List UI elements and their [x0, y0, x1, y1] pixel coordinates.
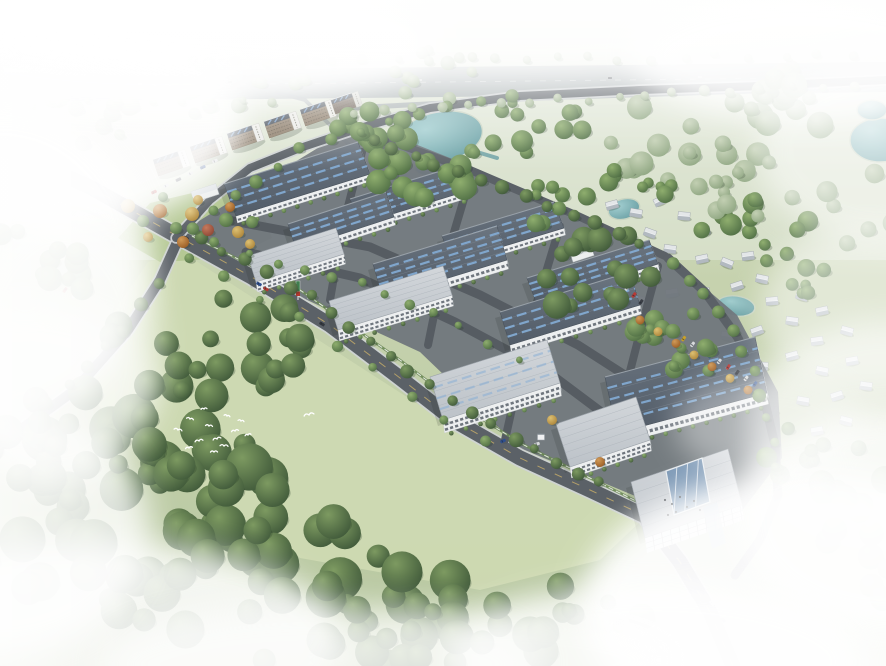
tree [654, 327, 663, 336]
tree [286, 324, 314, 352]
aerial-rendering-image [0, 0, 886, 666]
hedge-tree [551, 399, 556, 404]
tree [307, 290, 317, 300]
hedge-tree [615, 462, 620, 467]
tree [669, 361, 680, 372]
hedge-tree [485, 276, 490, 281]
tree [173, 381, 191, 399]
hedge-tree [444, 308, 449, 313]
tree [751, 209, 764, 222]
tree [219, 213, 233, 227]
tree [690, 178, 708, 196]
tree [218, 270, 229, 281]
tree [509, 432, 524, 447]
tree [475, 174, 487, 186]
tree [551, 457, 562, 468]
tree [697, 288, 709, 300]
tree [451, 174, 477, 200]
tree [368, 363, 377, 372]
tree [614, 264, 639, 289]
tree [170, 222, 182, 234]
tree [407, 392, 417, 402]
fog-patch [675, 370, 865, 480]
tree [381, 551, 422, 592]
hedge-tree [401, 322, 406, 327]
tree [495, 180, 509, 194]
tree [564, 238, 583, 257]
tree [483, 339, 493, 349]
tree [386, 351, 396, 361]
tree [595, 457, 605, 467]
tree [709, 175, 723, 189]
tree [656, 186, 673, 203]
hedge-tree [617, 321, 622, 326]
tree [243, 516, 271, 544]
tree [380, 290, 388, 298]
tree [188, 361, 206, 379]
tree [209, 237, 219, 247]
tree [667, 257, 680, 270]
hedge-tree [514, 250, 519, 255]
hedge-tree [650, 435, 655, 440]
tree [640, 266, 660, 286]
tree [177, 236, 189, 248]
tree [690, 351, 699, 360]
tree [527, 214, 545, 232]
tree [208, 205, 218, 215]
hedge-tree [349, 188, 354, 193]
tree [185, 207, 199, 221]
tree [249, 175, 262, 188]
tree [712, 306, 725, 319]
tree [284, 281, 298, 295]
hedge-tree [449, 431, 454, 436]
hedge-tree [663, 431, 668, 436]
hedge-tree [344, 241, 349, 246]
tree [516, 357, 523, 364]
tree [485, 418, 496, 429]
tree [735, 345, 747, 357]
tree [727, 324, 739, 336]
hedge-tree [277, 285, 282, 290]
tree [187, 222, 199, 234]
tree [546, 181, 559, 194]
tree [547, 415, 557, 425]
hedge-tree [407, 216, 412, 221]
tree [543, 291, 571, 319]
tree [573, 283, 592, 302]
hedge-tree [321, 271, 326, 276]
tree [230, 190, 240, 200]
tree [256, 296, 264, 304]
hedge-tree [358, 237, 363, 242]
tree [358, 278, 367, 287]
tree [537, 269, 557, 289]
hedge-tree [241, 221, 246, 226]
tree [587, 215, 602, 230]
tree [789, 222, 805, 238]
hedge-tree [478, 422, 483, 427]
tree [552, 201, 566, 215]
industrial-park-rendering [0, 0, 886, 666]
person [664, 499, 666, 501]
tree [154, 278, 165, 289]
tree [167, 451, 196, 480]
tree [316, 504, 351, 539]
tree [672, 339, 681, 348]
tree [637, 181, 648, 192]
tree [274, 260, 283, 269]
tree [246, 250, 253, 257]
hedge-tree [457, 284, 462, 289]
hedge-tree [629, 458, 634, 463]
tree [240, 302, 271, 333]
tree [184, 253, 194, 263]
tree [439, 415, 448, 424]
hedge-tree [588, 330, 593, 335]
tree [294, 312, 304, 322]
tree [520, 189, 534, 203]
hedge-tree [499, 271, 504, 276]
tree [666, 324, 681, 339]
tree [400, 365, 414, 379]
bird [746, 30, 750, 31]
tree [424, 379, 434, 389]
tree [594, 476, 604, 486]
hedge-tree [282, 209, 287, 214]
tree [607, 288, 629, 310]
hedge-tree [335, 192, 340, 197]
tree [165, 352, 193, 380]
tree [568, 210, 580, 222]
hedge-tree [421, 212, 426, 217]
tree [634, 239, 644, 249]
hedge-tree [556, 237, 561, 242]
tree [342, 321, 355, 334]
hedge-tree [358, 335, 363, 340]
hedge-tree [415, 317, 420, 322]
tree [429, 308, 438, 317]
hedge-tree [589, 471, 594, 476]
hedge-tree [372, 232, 377, 237]
hedge-tree [386, 227, 391, 232]
tree [193, 195, 203, 205]
tree [447, 395, 458, 406]
tree [202, 331, 219, 348]
tree [693, 222, 710, 239]
hedge-tree [344, 339, 349, 344]
bird [722, 26, 726, 27]
hedge-tree [464, 426, 469, 431]
tree [747, 192, 762, 207]
tree [214, 290, 232, 308]
tree [542, 201, 553, 212]
hedge-tree [434, 208, 439, 213]
tree [217, 247, 226, 256]
hedge-tree [387, 326, 392, 331]
tree [232, 226, 244, 238]
tree [561, 268, 579, 286]
tree [717, 194, 737, 214]
hedge-tree [362, 183, 367, 188]
tree [206, 354, 234, 382]
tree [480, 435, 491, 446]
hedge-tree [542, 242, 547, 247]
tree [578, 187, 596, 205]
hedge-tree [471, 280, 476, 285]
tree [466, 406, 479, 419]
tree [697, 339, 715, 357]
hedge-tree [537, 403, 542, 408]
tree [708, 362, 717, 371]
tree [300, 265, 310, 275]
hedge-tree [522, 408, 527, 413]
tree [246, 216, 258, 228]
tree [455, 322, 462, 329]
hedge-tree [308, 200, 313, 205]
hedge-tree [508, 412, 513, 417]
tree [687, 308, 699, 320]
tree [572, 468, 585, 481]
tree [759, 239, 771, 251]
tree [208, 460, 237, 489]
tree [404, 299, 415, 310]
tree [414, 188, 434, 208]
tree [636, 316, 645, 325]
tree [281, 353, 305, 377]
hedge-tree [335, 267, 340, 272]
hedge-tree [372, 330, 377, 335]
hedge-tree [642, 453, 647, 458]
hedge-tree [603, 325, 608, 330]
hedge-tree [574, 334, 579, 339]
tree [255, 473, 289, 507]
tree [326, 307, 338, 319]
tree [760, 254, 773, 267]
hedge-tree [322, 196, 327, 201]
tree [202, 224, 214, 236]
tree [247, 332, 271, 356]
tree [225, 202, 235, 212]
tree [684, 275, 696, 287]
tree [245, 239, 255, 249]
hedge-tree [448, 204, 453, 209]
left-haze [0, 0, 130, 666]
top-haze [0, 0, 886, 170]
hedge-tree [528, 246, 533, 251]
tree [326, 272, 337, 283]
hedge-tree [559, 339, 564, 344]
guard-booth [538, 434, 545, 440]
bird [214, 34, 218, 35]
tree [612, 227, 626, 241]
tree [366, 337, 375, 346]
hedge-tree [295, 204, 300, 209]
tree [260, 265, 274, 279]
tree [195, 379, 229, 413]
hedge-tree [306, 276, 311, 281]
tree [530, 444, 539, 453]
tree [587, 227, 612, 252]
hedge-tree [268, 213, 273, 218]
tree [332, 341, 343, 352]
